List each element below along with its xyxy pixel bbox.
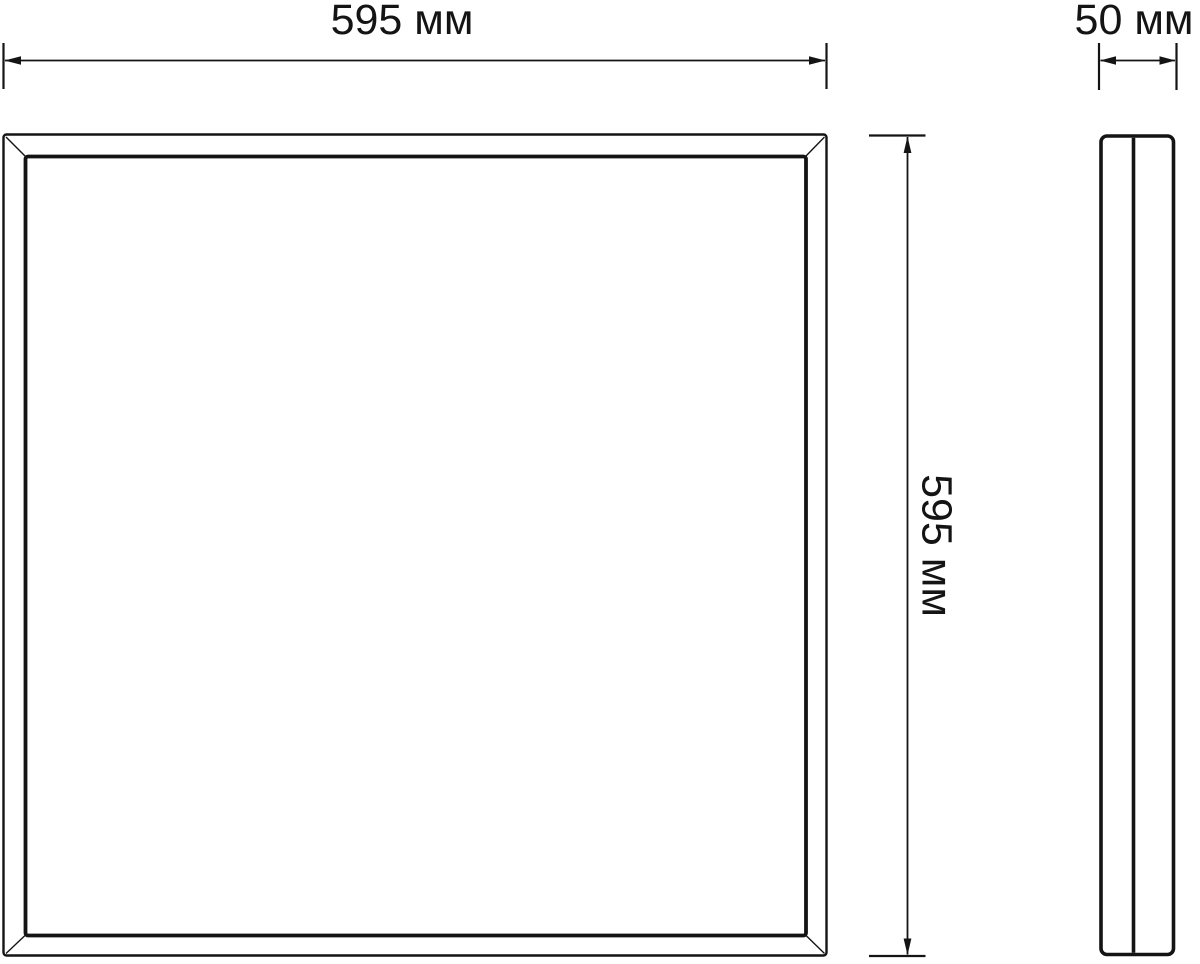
drawing-svg: 595 мм 595 мм 50 мм [0, 0, 1200, 964]
panel-dimensions-drawing: 595 мм 595 мм 50 мм [0, 0, 1200, 964]
arrowhead-down-icon [904, 939, 912, 956]
corner-miter-bottom-left [6, 936, 25, 954]
arrowhead-up-icon [904, 137, 912, 154]
height-dimension-label: 595 мм [913, 474, 961, 617]
depth-dimension: 50 мм [1075, 0, 1194, 90]
arrowhead-right-icon [1160, 56, 1176, 64]
corner-miter-top-right [806, 137, 825, 156]
front-view [4, 135, 827, 956]
arrowhead-left-icon [5, 56, 22, 64]
depth-dimension-label: 50 мм [1075, 0, 1194, 44]
width-dimension-label: 595 мм [331, 0, 474, 44]
arrowhead-right-icon [809, 56, 826, 64]
arrowhead-left-icon [1100, 56, 1116, 64]
width-dimension: 595 мм [4, 0, 827, 89]
side-view [1101, 136, 1174, 955]
height-dimension: 595 мм [869, 136, 961, 957]
corner-miter-bottom-right [806, 936, 825, 954]
front-view-outer-frame [4, 135, 827, 956]
corner-miter-top-left [6, 137, 25, 156]
front-view-inner-frame [26, 157, 807, 936]
side-view-outline [1101, 136, 1174, 955]
